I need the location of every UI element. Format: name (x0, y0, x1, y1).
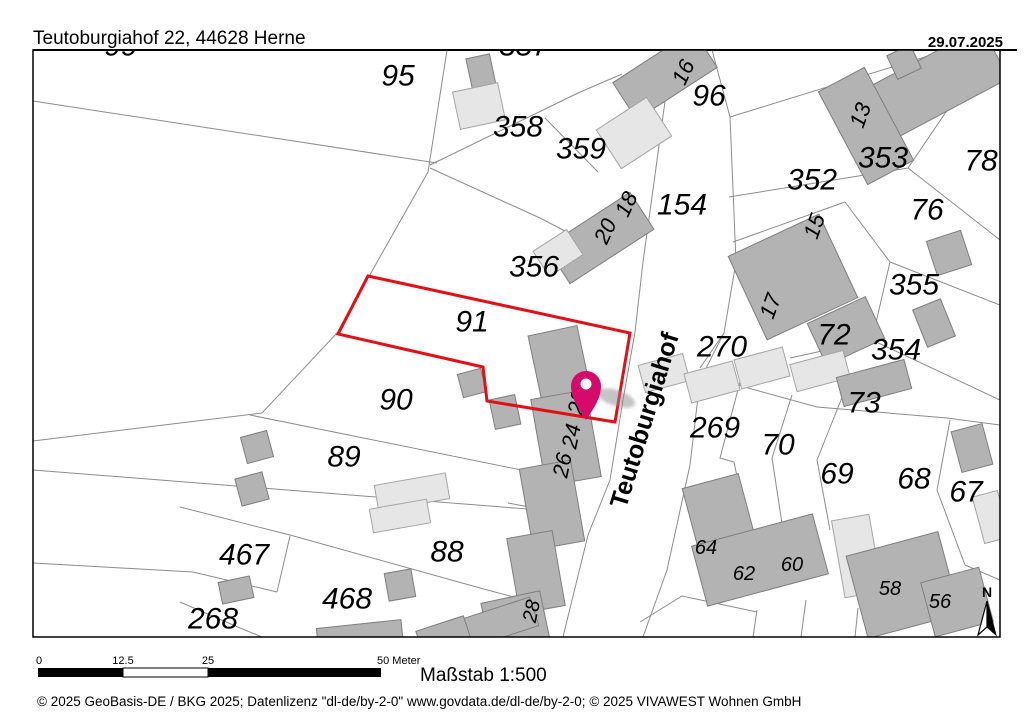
house-number-label: 58 (879, 578, 901, 600)
parcel-number-label: 70 (761, 429, 795, 462)
building-footprint (218, 576, 254, 604)
location-pin-hole (581, 379, 592, 390)
building-footprint (384, 569, 415, 601)
parcel-number-label: 88 (430, 536, 464, 569)
parcel-number-label: 90 (379, 384, 413, 417)
parcel-number-label: 96 (692, 80, 726, 113)
north-label: N (982, 584, 992, 600)
map-report-page: Teutoburgiahof 22, 44628 Herne 29.07.202… (0, 0, 1024, 724)
parcel-number-label: 72 (817, 319, 851, 352)
house-number-label: 62 (733, 563, 755, 585)
scale-bar-segment (123, 668, 208, 677)
map-canvas: Teutoburgiahof 22, 44628 Herne 29.07.202… (0, 0, 1024, 724)
parcel-boundary-line (33, 470, 540, 510)
building-footprint (684, 361, 740, 403)
parcel-boundary-line (640, 596, 757, 622)
parcel-boundary-line (772, 395, 792, 530)
building-footprint (416, 616, 470, 652)
building-footprint (489, 395, 521, 430)
scale-tick: 25 (202, 655, 214, 667)
parcel-boundary-line (753, 610, 757, 637)
house-number-label: 60 (781, 554, 803, 576)
parcel-number-label: 69 (820, 458, 854, 491)
parcel-boundary-line (277, 536, 290, 592)
parcel-number-label: 356 (509, 251, 559, 284)
page-title: Teutoburgiahof 22, 44628 Herne (33, 28, 306, 49)
scale-tick: 0 (36, 655, 42, 667)
house-number-label: 64 (695, 537, 717, 559)
parcel-number-label: 353 (858, 142, 908, 175)
parcel-number-label: 354 (871, 334, 921, 367)
scale-caption: Maßstab 1:500 (420, 665, 547, 686)
house-number-label: 24 (556, 421, 586, 451)
parcel-number-label: 78 (964, 145, 998, 178)
building-footprint (240, 430, 273, 463)
parcel-boundary-line (801, 600, 806, 637)
parcel-number-label: 467 (219, 539, 270, 572)
scale-bar: 0 12.5 25 50 Meter Maßstab 1:500 (36, 655, 547, 686)
map-content-layer: 9596358359353783521547635635591722703549… (33, 27, 1010, 657)
scale-bar-segment (38, 668, 123, 677)
parcel-number-label: 359 (556, 133, 606, 166)
parcel-number-label: 357 (499, 30, 550, 63)
parcel-number-label: 91 (455, 306, 488, 339)
parcel-number-label: 68 (897, 463, 931, 496)
parcel-boundary-line (33, 413, 262, 441)
parcel-boundary-line (845, 202, 890, 262)
parcel-number-label: 270 (696, 331, 747, 364)
parcel-boundary-line (855, 608, 858, 637)
parcel-number-label: 358 (493, 111, 543, 144)
parcel-number-label: 468 (322, 583, 372, 616)
parcel-number-label: 89 (327, 441, 361, 474)
copyright-text: © 2025 GeoBasis-DE / BKG 2025; Datenlize… (37, 694, 801, 709)
parcel-number-label: 269 (689, 412, 740, 445)
map-date: 29.07.2025 (928, 34, 1003, 51)
parcel-number-label: 268 (187, 603, 238, 636)
parcel-number-label: 154 (657, 189, 707, 222)
building-footprint (596, 97, 671, 168)
scale-tick: 50 Meter (377, 655, 421, 667)
parcel-boundary-line (428, 50, 447, 172)
parcel-boundary-line (262, 333, 337, 413)
parcel-number-label: 73 (847, 387, 881, 420)
parcel-number-label: 355 (889, 269, 939, 302)
parcel-number-label: 76 (910, 194, 944, 227)
parcel-number-label: 67 (949, 476, 984, 509)
parcel-number-label: 95 (381, 60, 415, 93)
parcel-boundary-line (33, 101, 437, 163)
house-number-label: 56 (929, 591, 952, 613)
scale-tick: 12.5 (112, 655, 133, 667)
building-footprint (235, 472, 269, 506)
parcel-number-label: 352 (787, 164, 837, 197)
scale-bar-segment (208, 668, 381, 677)
building-footprint (951, 424, 993, 473)
